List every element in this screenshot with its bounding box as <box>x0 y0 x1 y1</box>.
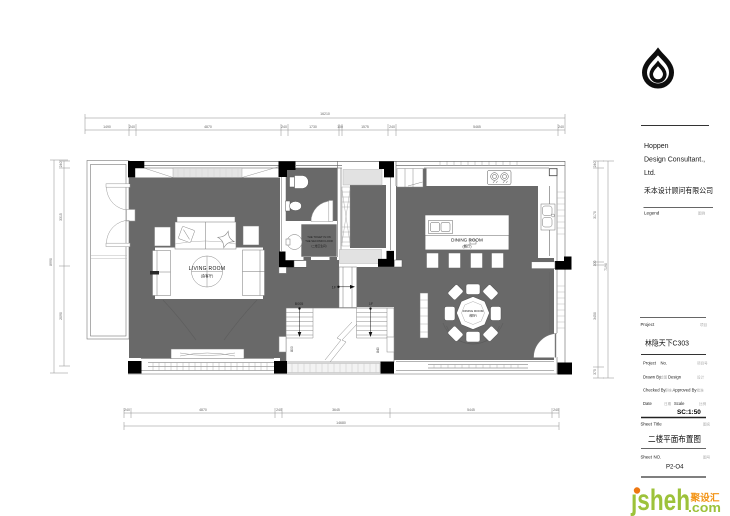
svg-text:DINING ROOM: DINING ROOM <box>451 238 483 243</box>
svg-text:审核: 审核 <box>665 388 673 393</box>
svg-text:Project: Project <box>641 322 655 327</box>
svg-text:14680: 14680 <box>336 421 346 425</box>
svg-text:Hoppen: Hoppen <box>644 143 669 150</box>
svg-text:(二楼卫生间): (二楼卫生间) <box>311 244 326 248</box>
svg-text:Design Consultant.,: Design Consultant., <box>644 157 705 164</box>
svg-text:240: 240 <box>558 125 564 129</box>
svg-text:800: 800 <box>290 346 294 352</box>
svg-text:5465: 5465 <box>473 125 481 129</box>
svg-text:240: 240 <box>129 125 135 129</box>
svg-text:项目: 项目 <box>700 322 707 327</box>
svg-text:240: 240 <box>59 162 63 168</box>
svg-text:日期: 日期 <box>664 401 672 406</box>
svg-text:Ltd.: Ltd. <box>644 170 656 177</box>
svg-text:1730: 1730 <box>309 125 317 129</box>
svg-text:项目号: 项目号 <box>697 361 708 366</box>
svg-text:图号: 图号 <box>703 455 711 460</box>
svg-text:5445: 5445 <box>467 408 475 412</box>
svg-text:240: 240 <box>281 125 287 129</box>
svg-text:3450: 3450 <box>593 312 597 320</box>
svg-text:100: 100 <box>593 261 597 267</box>
svg-text:3170: 3170 <box>593 211 597 219</box>
svg-text:Checked By: Checked By <box>643 388 666 393</box>
svg-text:3645: 3645 <box>332 408 340 412</box>
svg-text:Scale: Scale <box>674 401 685 406</box>
svg-text:Legend: Legend <box>644 211 660 216</box>
svg-text:比例: 比例 <box>699 401 707 406</box>
svg-text:(餐厅): (餐厅) <box>469 313 477 318</box>
svg-text:4870: 4870 <box>199 408 207 412</box>
svg-text:THE TOILET IS ON: THE TOILET IS ON <box>307 235 331 239</box>
svg-text:No.: No. <box>661 361 668 366</box>
svg-text:禾本设计顾问有限公司: 禾本设计顾问有限公司 <box>644 186 713 195</box>
svg-text:LIVING ROOM: LIVING ROOM <box>189 266 226 272</box>
svg-text:Approved By: Approved By <box>673 388 698 393</box>
svg-text:林隐天下C303: 林隐天下C303 <box>645 339 689 348</box>
svg-text:4870: 4870 <box>204 125 212 129</box>
svg-text:Title: Title <box>654 422 663 427</box>
svg-text:设计: 设计 <box>697 375 705 380</box>
svg-text:240: 240 <box>593 162 597 168</box>
svg-text:.com: .com <box>688 501 721 515</box>
svg-text:100: 100 <box>337 125 343 129</box>
svg-text:840: 840 <box>376 347 380 353</box>
svg-text:NO.: NO. <box>654 455 662 460</box>
svg-text:批准: 批准 <box>697 388 705 393</box>
svg-text:P2-O4: P2-O4 <box>666 464 684 471</box>
svg-text:(会客厅): (会客厅) <box>201 273 213 278</box>
svg-text:Project: Project <box>643 361 657 366</box>
svg-text:240: 240 <box>124 408 130 412</box>
svg-text:THE SECOND FLOOR: THE SECOND FLOOR <box>305 239 333 243</box>
svg-text:1490: 1490 <box>103 125 111 129</box>
svg-text:Sheet: Sheet <box>641 422 653 427</box>
svg-text:Date: Date <box>643 401 653 406</box>
svg-text:图名: 图名 <box>703 422 711 427</box>
svg-text:16210: 16210 <box>320 112 330 116</box>
svg-text:1575: 1575 <box>361 125 369 129</box>
svg-text:(餐厅): (餐厅) <box>462 244 471 249</box>
svg-text:SC:1:50: SC:1:50 <box>677 409 701 416</box>
svg-text:B005: B005 <box>295 302 303 306</box>
svg-text:Sheet: Sheet <box>641 455 653 460</box>
svg-text:375: 375 <box>593 369 597 375</box>
svg-text:240: 240 <box>389 125 395 129</box>
svg-text:240: 240 <box>276 408 282 412</box>
svg-text:240: 240 <box>553 408 559 412</box>
svg-text:图例: 图例 <box>698 211 706 216</box>
svg-text:1F: 1F <box>332 284 337 289</box>
svg-text:3315: 3315 <box>59 213 63 221</box>
svg-text:绘图: 绘图 <box>660 375 668 380</box>
svg-text:2090: 2090 <box>59 312 63 320</box>
svg-text:Design: Design <box>668 375 682 380</box>
svg-text:二楼平面布置图: 二楼平面布置图 <box>648 434 701 444</box>
svg-text:DINING ROOM: DINING ROOM <box>463 309 484 313</box>
svg-text:8990: 8990 <box>49 258 53 266</box>
svg-text:7190: 7190 <box>604 263 608 271</box>
